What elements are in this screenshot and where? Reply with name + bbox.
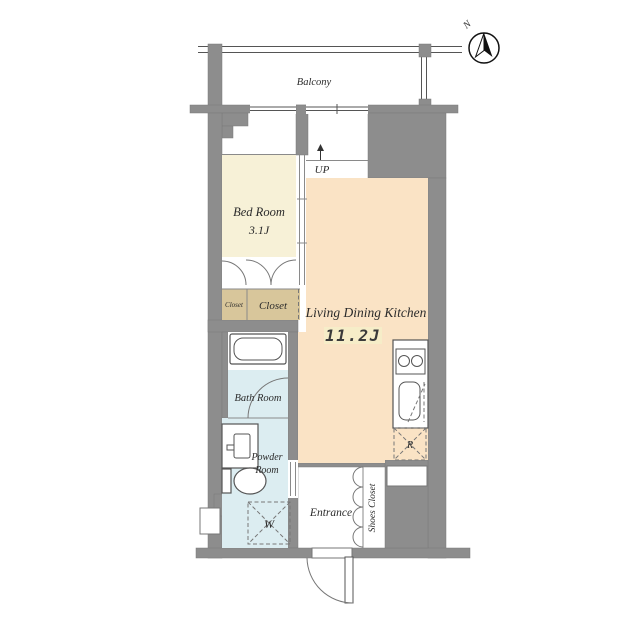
- powder-room-label-1: Powder: [250, 452, 282, 463]
- entrance-door: [307, 548, 353, 603]
- wall-left: [208, 113, 222, 558]
- floor-plan-page: N: [0, 0, 640, 640]
- kitchen-counter: [393, 340, 428, 428]
- entrance-label: Entrance: [309, 507, 352, 519]
- entrance-door-leaf: [345, 557, 353, 603]
- closet-large-label: Closet: [259, 300, 288, 312]
- closet-small-label: Closet: [225, 301, 244, 309]
- compass-north-icon: N: [461, 18, 499, 63]
- wall-top-left-step2: [222, 126, 233, 138]
- up-label: UP: [315, 164, 330, 176]
- toilet-tank: [222, 469, 231, 493]
- washer-label: W: [264, 517, 275, 531]
- compass-north-label: N: [461, 18, 475, 32]
- folding-door-arc: [353, 507, 363, 527]
- bedroom-window: [250, 104, 296, 114]
- closet-door-zone: [222, 257, 296, 289]
- bath-room-label: Bath Room: [235, 393, 282, 404]
- right-wall-niche: [387, 466, 427, 486]
- wall-balcony-right-top: [419, 44, 431, 57]
- powder-door-opening: [288, 460, 298, 498]
- left-wall-niche: [200, 508, 220, 534]
- sliding-partition: [297, 155, 307, 285]
- shoes-closet: Shoes Closet: [353, 467, 378, 548]
- folding-door-arc: [353, 467, 363, 487]
- entrance-step-edge: [298, 463, 385, 467]
- balcony-label: Balcony: [297, 77, 332, 88]
- wall-closet-bath: [208, 320, 298, 332]
- wall-top-left-step: [222, 113, 248, 126]
- shoes-closet-label: Shoes Closet: [368, 483, 378, 532]
- powder-room-label-2: Room: [254, 465, 278, 476]
- folding-door-arc: [353, 527, 363, 547]
- windows: [250, 104, 368, 114]
- wall-balcony-left: [208, 44, 222, 113]
- bedroom-area-label: 3.1J: [248, 223, 270, 237]
- refrigerator-label: R: [406, 440, 413, 451]
- wall-bottom-right: [352, 548, 470, 558]
- up-step: UP: [306, 144, 368, 176]
- wall-bottom-left: [196, 548, 312, 558]
- wall-right: [428, 178, 446, 558]
- bedroom-label: Bed Room: [233, 205, 285, 219]
- ldk-area-label: 11.2J: [325, 326, 381, 345]
- ldk-label: Living Dining Kitchen: [305, 305, 427, 320]
- wall-top-right-block: [368, 113, 446, 178]
- folding-door-arc: [353, 487, 363, 507]
- up-arrow-icon: [317, 144, 324, 151]
- wall-bath-left-extra: [222, 332, 228, 418]
- floor-plan-canvas: N: [0, 0, 640, 640]
